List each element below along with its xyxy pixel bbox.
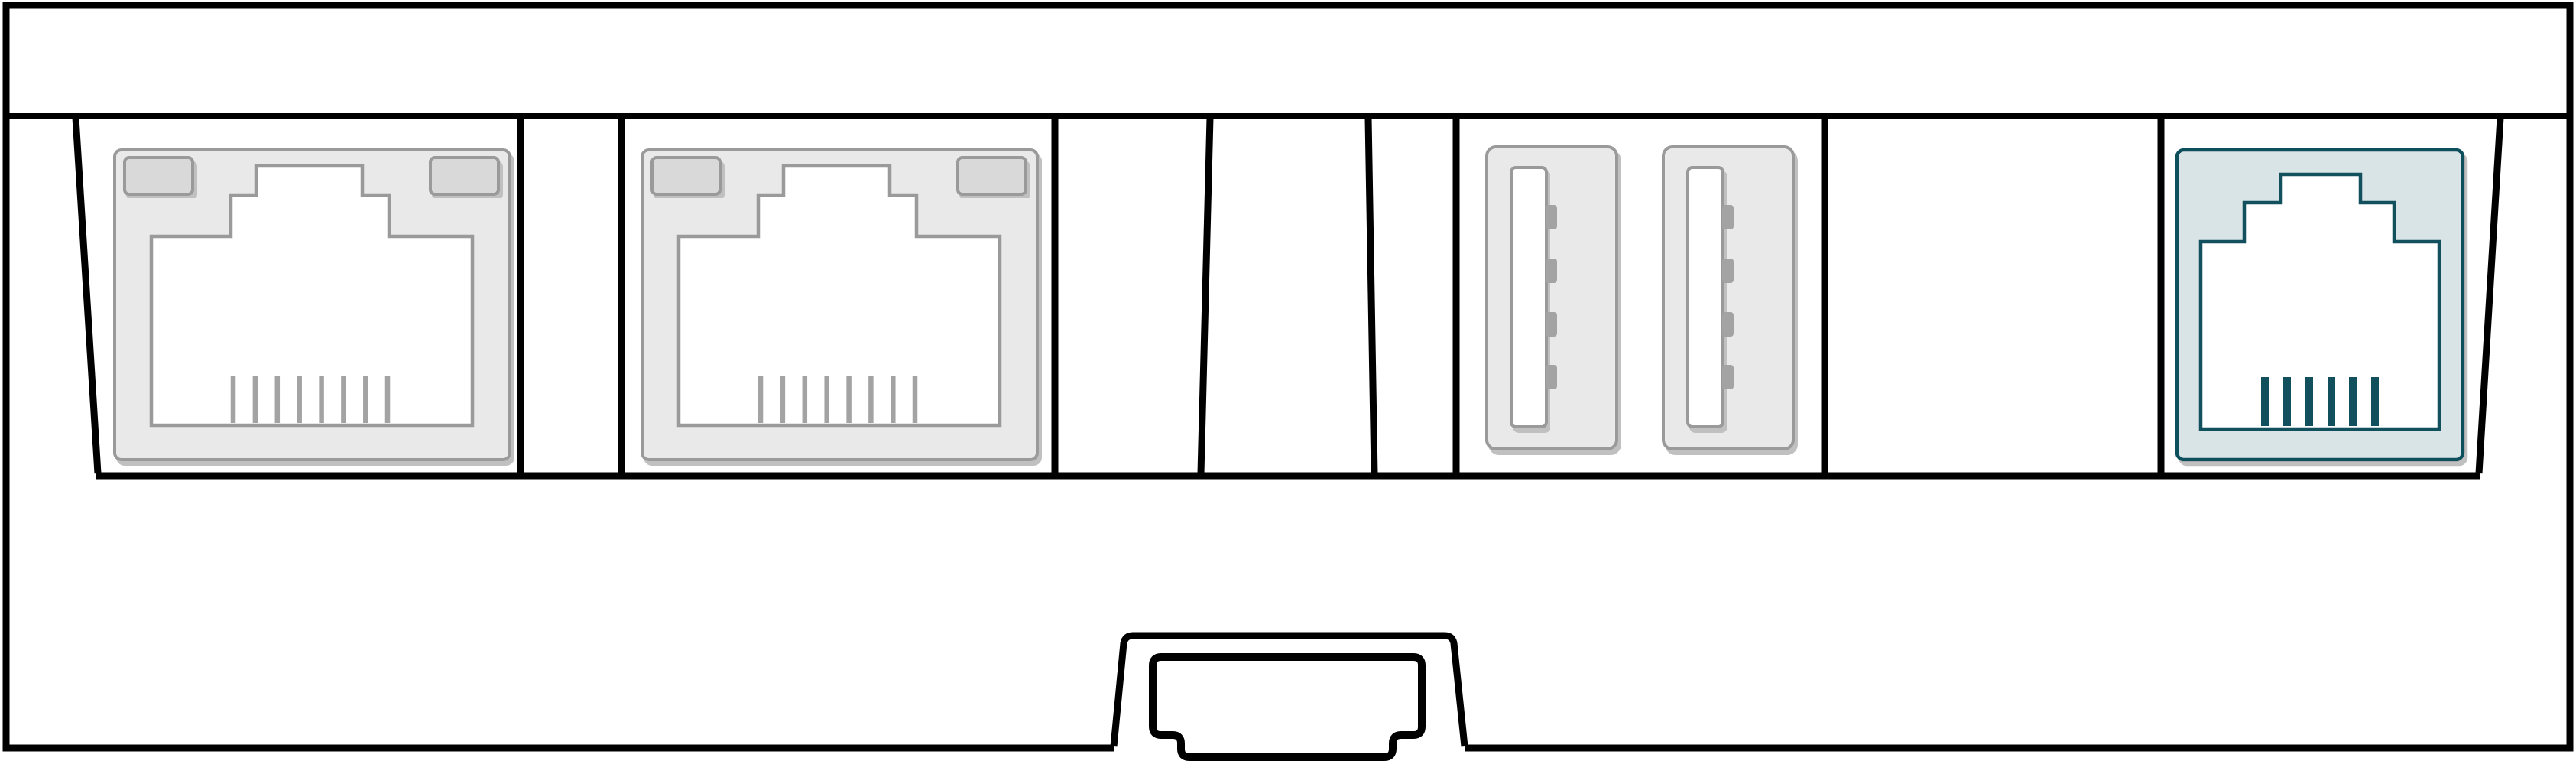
- console-port: [2177, 150, 2463, 460]
- ethernet-port-1: [115, 150, 510, 460]
- expansion-connector: [1153, 657, 1422, 757]
- ethernet-port-2: [642, 150, 1037, 460]
- usb-port-1: [1487, 147, 1617, 449]
- rear-panel-diagram: [0, 0, 2576, 761]
- rear-panel-illustration: [0, 0, 2576, 761]
- usb-port-2: [1663, 147, 1793, 449]
- ethernet-port-1-connector: [115, 150, 510, 460]
- ethernet-port-2-connector: [642, 150, 1037, 460]
- usb-port-2-connector: [1663, 147, 1793, 449]
- blank-slot: [1204, 119, 1372, 473]
- usb-port-1-connector: [1487, 147, 1617, 449]
